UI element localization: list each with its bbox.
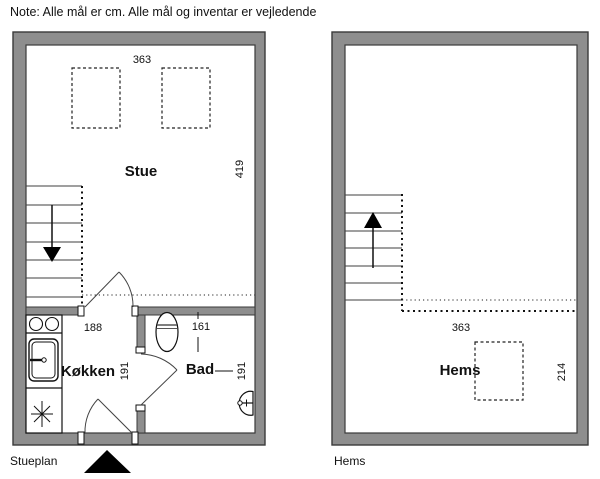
room-label-bath: Bad <box>180 361 220 379</box>
ground-floor-plan-drawing <box>13 32 265 473</box>
loft-plan-drawing <box>332 32 588 445</box>
dim-bath-width: 161 <box>186 320 216 334</box>
entrance-arrow-icon <box>84 450 131 473</box>
room-label-living: Stue <box>111 163 171 181</box>
dim-ground-right-height: 419 <box>233 154 247 184</box>
dim-loft-width: 363 <box>446 321 476 335</box>
toilet-icon <box>156 313 178 352</box>
dim-kitchen-depth: 191 <box>118 356 132 386</box>
caption-loft: Hems <box>334 454 365 468</box>
dim-loft-depth: 214 <box>555 357 569 387</box>
dim-ground-top-width: 363 <box>127 53 157 67</box>
caption-ground-floor: Stueplan <box>10 454 57 468</box>
room-label-kitchen: Køkken <box>53 363 123 381</box>
dim-bath-depth: 191 <box>235 356 249 386</box>
note-text: Note: Alle mål er cm. Alle mål og invent… <box>10 5 316 19</box>
dim-kitchen-width: 188 <box>78 321 108 335</box>
floor-plan-canvas <box>0 0 600 479</box>
room-label-loft: Hems <box>430 362 490 380</box>
